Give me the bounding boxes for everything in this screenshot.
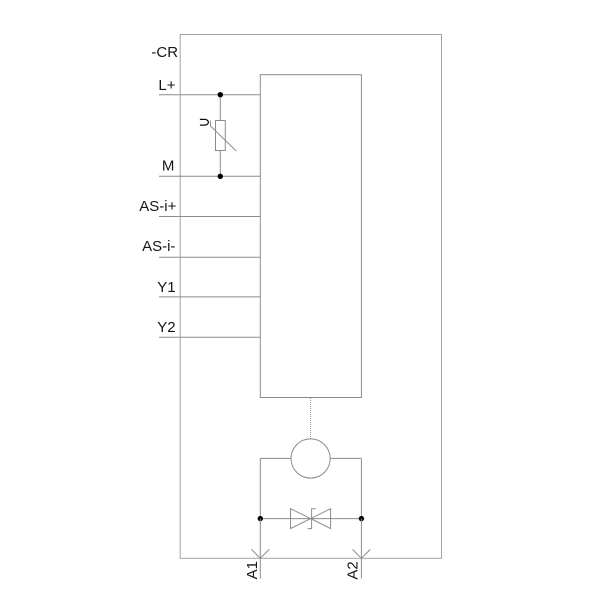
svg-text:M: M — [162, 158, 175, 175]
svg-text:-CR: -CR — [151, 44, 178, 61]
svg-text:A1: A1 — [244, 561, 261, 579]
svg-text:L+: L+ — [158, 77, 175, 94]
svg-text:Y2: Y2 — [157, 319, 175, 336]
svg-text:A2: A2 — [344, 561, 361, 579]
svg-text:Y1: Y1 — [157, 279, 175, 296]
svg-text:AS-i+: AS-i+ — [139, 198, 176, 215]
svg-text:AS-i-: AS-i- — [142, 238, 175, 255]
